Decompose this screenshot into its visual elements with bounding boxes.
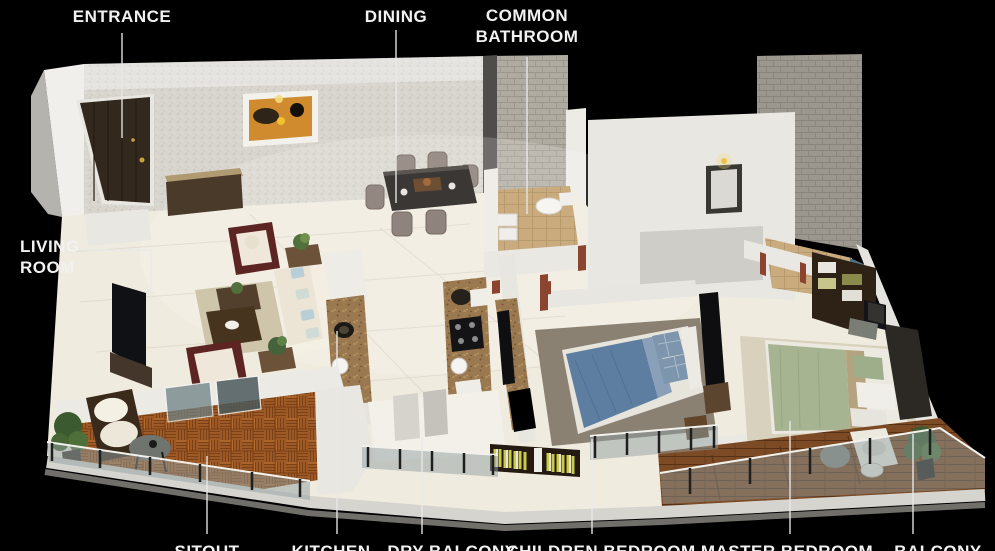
painting-detail-yellow [277,117,285,125]
wardrobe-shelf-item [842,274,862,285]
wall-painting [243,90,318,147]
corridor-jamb-b [543,281,551,295]
label-dining: DINING [365,6,428,27]
burner [455,324,461,330]
table-plant [231,282,243,294]
toilet-bowl [536,198,562,214]
label-common-bathroom-line1: COMMON [476,5,579,26]
armchair-pillow [245,235,259,249]
label-living-room-line1: LIVING [20,236,80,257]
frame-lamp [721,158,727,164]
label-children-bedroom: CHILDREN BEDROOM [506,541,695,551]
bed-pillow-white [856,382,896,410]
door-handle [140,158,145,163]
children-tv-cabinet [703,382,731,414]
door-hinge [131,138,135,142]
bathroom-storage-box [497,214,517,226]
cooking-pot-inner [339,326,349,334]
entry-pedestal [85,209,151,246]
utility-panel [393,393,420,441]
glass-pane-dark [216,376,261,415]
bed-pillow-green [852,355,884,380]
dining-plate [449,183,456,190]
dining-chair [426,210,446,234]
kitchen-sink-2 [451,358,467,374]
wardrobe-shelf-item [818,262,836,273]
painting-detail-dark [253,108,279,124]
shelf-divider [534,448,542,472]
gas-stove [449,316,484,352]
toilet-tank [559,192,574,206]
label-kitchen: KITCHEN [291,541,370,551]
burner [469,322,475,328]
glass-pane [165,382,213,422]
label-common-bathroom: COMMON BATHROOM [476,5,579,47]
side-table-plant-hi [300,233,310,243]
label-dry-balcony: DRY BALCONY [387,541,516,551]
label-sitout: SITOUT [174,541,239,551]
label-master-bedroom: MASTER BEDROOM [701,541,873,551]
dining-chair [392,212,412,236]
wardrobe-shelf-item [842,290,862,301]
burner [472,336,478,342]
dining-plate [401,189,408,196]
painting-detail-black [290,103,304,117]
label-living-room-line2: ROOM [20,257,80,278]
dining-chair [366,185,384,209]
dining-flowers [423,178,431,186]
label-common-bathroom-line2: BATHROOM [476,26,579,47]
burner [458,338,464,344]
label-entrance: ENTRANCE [73,6,171,27]
frame-inner [711,169,737,209]
utility-panel-2 [423,389,448,437]
sitout-table-item [149,440,157,448]
floor-plan-scene: ENTRANCE DINING COMMON BATHROOM LIVING R… [0,0,995,551]
corridor-jamb-a [492,280,500,294]
armchair-top [228,222,280,275]
wok [451,289,471,305]
wardrobe-shelf-item [818,278,836,289]
bathroom-storage-box-2 [499,228,517,240]
sofa-end-plant-hi [277,336,287,346]
floorplan-render [0,0,995,551]
label-living-room: LIVING ROOM [20,236,80,278]
painting-lamp [275,95,283,103]
master-bath-jamb-right [800,262,806,284]
label-balcony: BALCONY [894,541,982,551]
cutting-board [470,288,488,307]
table-bowl [225,321,239,330]
bathroom-door-jamb [578,245,586,271]
master-bath-jamb-left [760,252,766,276]
